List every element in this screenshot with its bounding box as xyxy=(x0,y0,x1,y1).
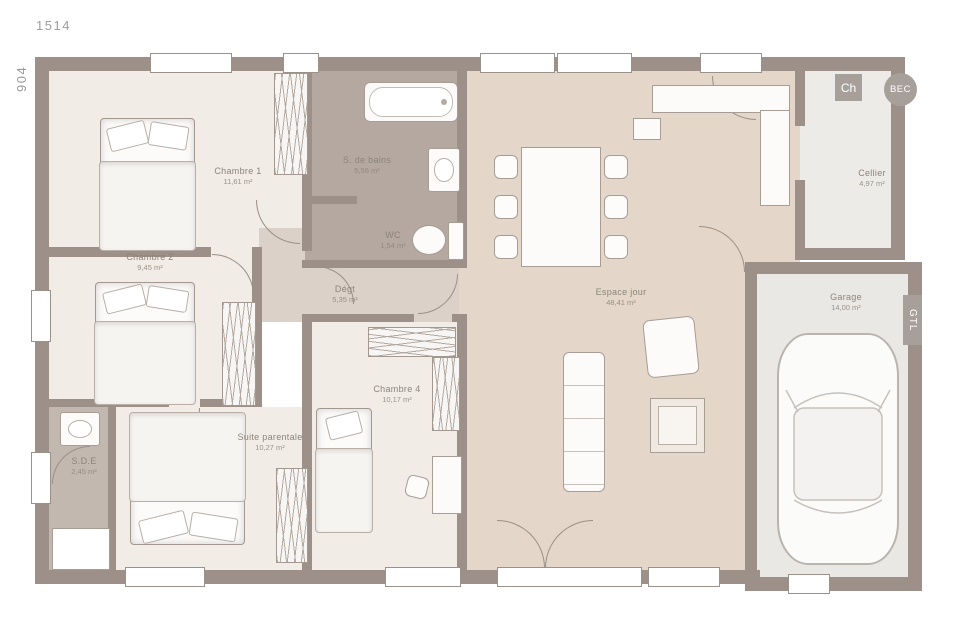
floor-plan: 1514 904 xyxy=(0,0,960,639)
wall-garage-top xyxy=(757,262,922,274)
dining-chair-icon xyxy=(604,155,628,179)
sofa-icon xyxy=(563,352,605,492)
armchair-icon xyxy=(642,315,700,378)
badge-bec: BEC xyxy=(884,73,917,106)
wall-chambre4-top-a xyxy=(302,314,414,322)
window-bath-top xyxy=(283,53,319,73)
window-living-bottom-right xyxy=(648,567,720,587)
badge-ch: Ch xyxy=(835,74,862,101)
coffee-table-icon xyxy=(650,398,705,453)
room-label-chambre2: Chambre 2 9,45 m² xyxy=(126,252,173,272)
wall-living-garage xyxy=(745,262,757,591)
wall-chambre4-right xyxy=(457,314,467,570)
room-label-bathroom: S. de bains 5,56 m² xyxy=(343,155,391,175)
bed-suite-icon xyxy=(130,413,245,545)
toilet-icon xyxy=(412,222,464,258)
room-label-chambre4: Chambre 4 10,17 m² xyxy=(373,384,420,404)
window-suite-bottom xyxy=(125,567,205,587)
room-label-sde: S.D.E 2,45 m² xyxy=(71,456,96,476)
shower-icon xyxy=(52,528,110,570)
room-label-chambre1: Chambre 1 11,61 m² xyxy=(214,166,261,186)
dining-chair-icon xyxy=(604,235,628,259)
kitchen-counter-top-icon xyxy=(652,85,790,113)
window-living-top-left xyxy=(480,53,555,73)
room-label-degt: Dégt 5,35 m² xyxy=(332,284,357,304)
wall-bath-wc xyxy=(302,196,357,204)
window-kitchen-top xyxy=(700,53,762,73)
kitchen-appliance-icon xyxy=(633,118,661,140)
window-chambre2-left xyxy=(31,290,51,342)
door-garage-bottom xyxy=(788,574,830,594)
dining-chair-icon xyxy=(494,155,518,179)
wardrobe-chambre2-icon xyxy=(222,302,256,406)
dining-chair-icon xyxy=(494,195,518,219)
wall-garage-bottom xyxy=(745,577,922,591)
wall-cellier-left-b xyxy=(795,180,805,248)
dining-chair-icon xyxy=(494,235,518,259)
wall-cellier-left-a xyxy=(795,71,805,126)
wardrobe-chambre1-icon xyxy=(274,73,308,175)
room-label-garage: Garage 14,00 m² xyxy=(830,292,862,312)
bed-chambre2-icon xyxy=(95,282,195,404)
bed-chambre1-icon xyxy=(100,118,195,250)
wardrobe-chambre4-top-icon xyxy=(368,327,456,357)
room-label-cellier: Cellier 4,97 m² xyxy=(858,168,886,188)
dining-table-icon xyxy=(521,147,601,267)
washbasin-bath-icon xyxy=(428,148,460,192)
bed-chambre4-icon xyxy=(316,408,372,532)
dimension-width-label: 1514 xyxy=(36,18,71,33)
window-living-bay-bottom xyxy=(497,567,642,587)
window-chambre1-top xyxy=(150,53,232,73)
washbasin-sde-icon xyxy=(60,412,100,446)
window-living-top-right xyxy=(557,53,632,73)
dimension-height-label: 904 xyxy=(14,66,29,92)
room-label-suite: Suite parentale 10,27 m² xyxy=(237,432,302,452)
wardrobe-chambre4-side-icon xyxy=(432,357,460,431)
desk-icon xyxy=(432,456,462,514)
dining-chair-icon xyxy=(604,195,628,219)
window-chambre4-bottom xyxy=(385,567,461,587)
wall-cellier-bottom xyxy=(795,248,905,260)
room-label-espace-jour: Espace jour 48,41 m² xyxy=(596,287,647,307)
badge-gtl: GTL xyxy=(903,295,922,345)
bathtub-icon xyxy=(364,82,458,122)
room-label-wc: WC 1,54 m² xyxy=(380,230,405,250)
kitchen-counter-side-icon xyxy=(760,110,790,206)
car-icon xyxy=(772,330,904,568)
wardrobe-suite-icon xyxy=(276,468,308,563)
window-sde-left xyxy=(31,452,51,504)
